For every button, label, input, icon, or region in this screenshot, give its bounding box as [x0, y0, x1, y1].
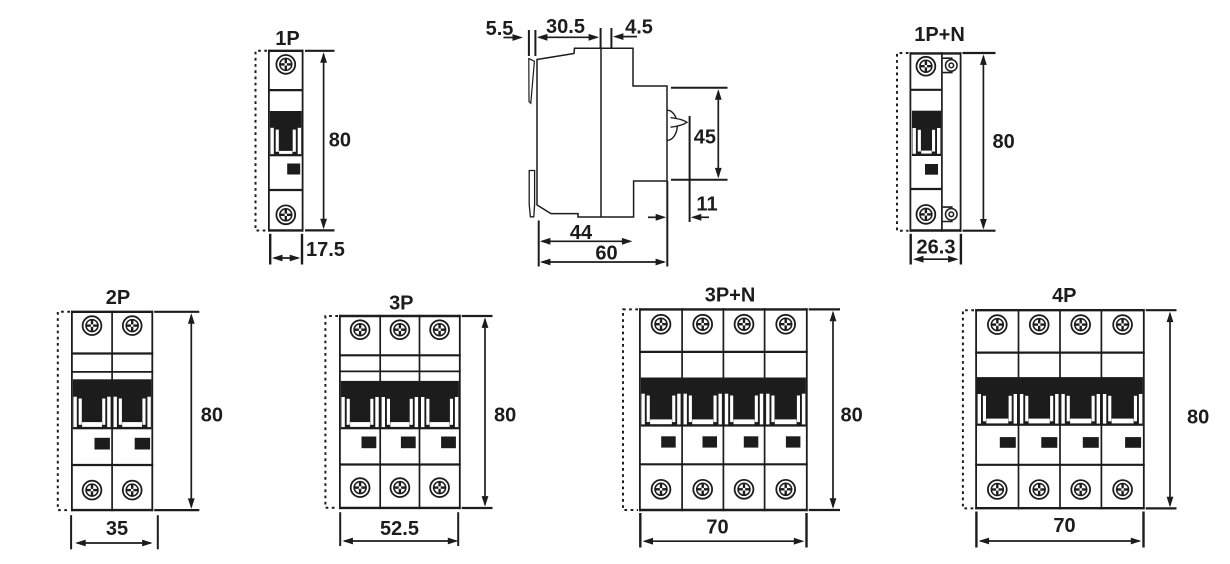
svg-text:60: 60	[595, 243, 617, 265]
svg-text:80: 80	[494, 405, 516, 427]
svg-text:1P: 1P	[275, 28, 299, 50]
svg-text:45: 45	[694, 127, 716, 149]
svg-text:3P: 3P	[389, 292, 413, 314]
svg-text:4.5: 4.5	[625, 17, 653, 39]
svg-text:4P: 4P	[1052, 285, 1076, 307]
svg-text:70: 70	[1053, 515, 1075, 537]
svg-text:17.5: 17.5	[306, 239, 345, 261]
svg-text:70: 70	[706, 517, 728, 539]
svg-text:44: 44	[570, 222, 593, 244]
svg-text:80: 80	[1187, 407, 1209, 429]
svg-text:11: 11	[696, 194, 717, 216]
svg-text:80: 80	[993, 131, 1015, 153]
svg-text:52.5: 52.5	[380, 518, 419, 540]
svg-text:26.3: 26.3	[917, 237, 956, 259]
svg-text:80: 80	[841, 405, 863, 427]
svg-text:2P: 2P	[106, 287, 130, 309]
svg-text:35: 35	[106, 518, 128, 540]
svg-text:3P+N: 3P+N	[705, 285, 756, 307]
svg-text:30.5: 30.5	[546, 16, 585, 38]
svg-text:1P+N: 1P+N	[914, 24, 965, 46]
svg-text:80: 80	[329, 130, 351, 152]
svg-text:80: 80	[201, 405, 223, 427]
